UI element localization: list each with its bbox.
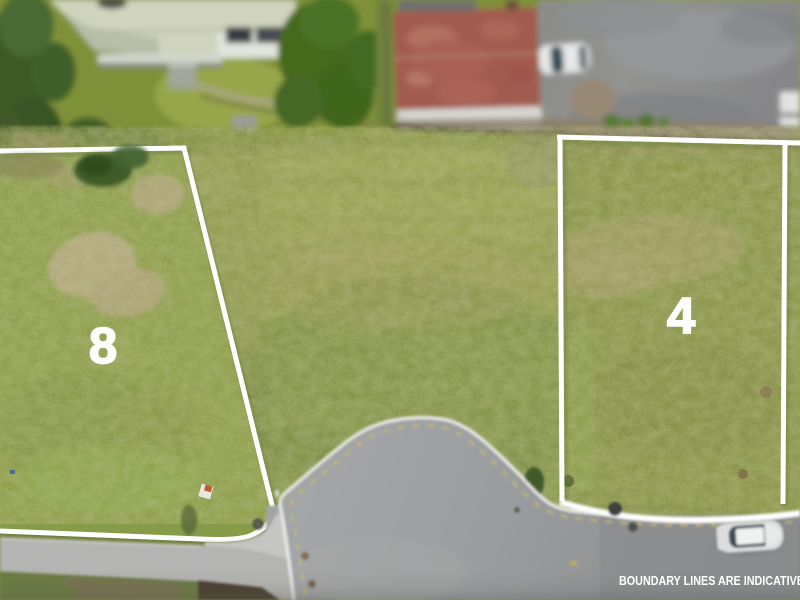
svg-text:4: 4: [667, 287, 696, 344]
svg-text:BOUNDARY LINES ARE INDICATIVE: BOUNDARY LINES ARE INDICATIVE: [619, 573, 800, 588]
svg-text:8: 8: [89, 317, 117, 374]
